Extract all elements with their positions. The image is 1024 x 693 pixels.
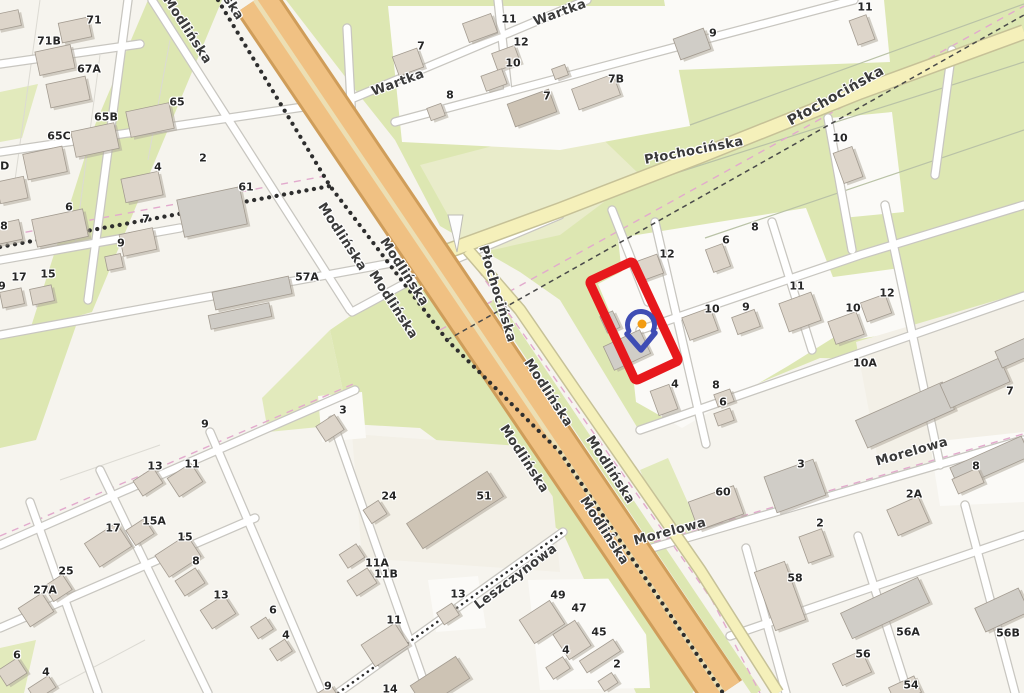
map-canvas[interactable]: 7171B67A6565B65C65D426168791715957A71112…: [0, 0, 1024, 693]
parcel-area: [388, 6, 690, 150]
map-graphics-layer: [0, 0, 1024, 693]
